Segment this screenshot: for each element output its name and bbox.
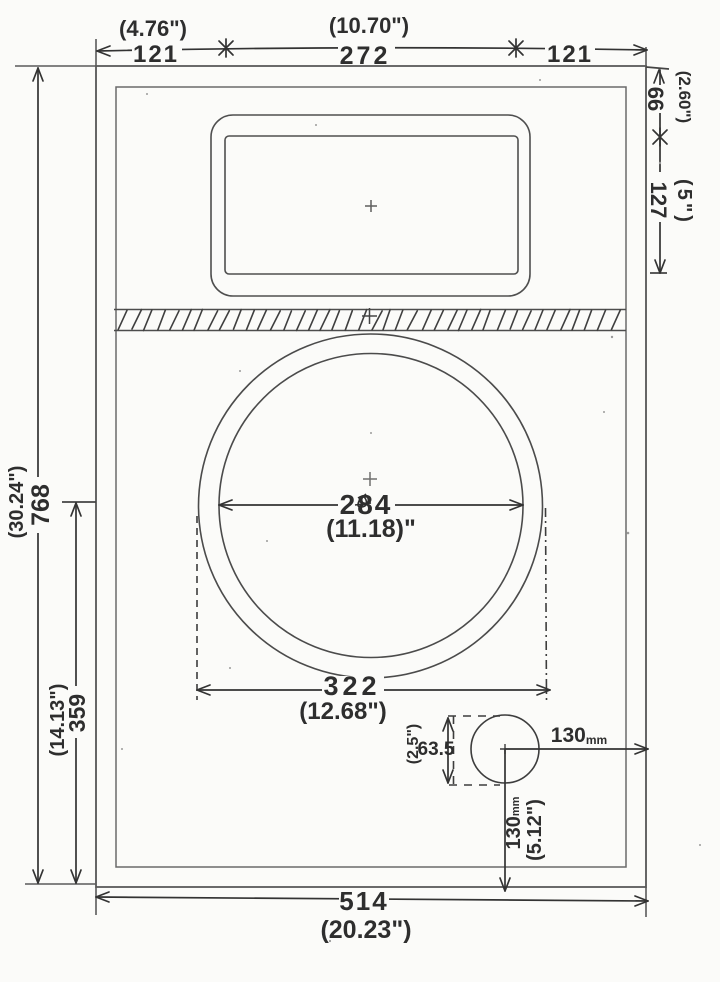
svg-text:322: 322 [323, 671, 380, 701]
svg-text:(2.60"): (2.60") [675, 71, 694, 123]
svg-text:272: 272 [340, 42, 391, 70]
svg-text:63.5: 63.5 [418, 739, 455, 760]
svg-text:768: 768 [27, 484, 55, 526]
svg-text:66: 66 [643, 87, 668, 111]
svg-text:(12.68"): (12.68") [299, 698, 386, 725]
svg-text:(10.70"): (10.70") [329, 13, 409, 38]
svg-text:(4.76"): (4.76") [119, 16, 187, 41]
svg-text:(14.13"): (14.13") [47, 684, 69, 757]
svg-text:(5"): (5") [673, 179, 695, 225]
svg-text:(5.12"): (5.12") [524, 799, 546, 861]
svg-text:(2.5"): (2.5") [405, 724, 422, 764]
svg-text:514: 514 [339, 886, 388, 916]
svg-text:(30.24"): (30.24") [6, 466, 28, 539]
svg-text:121: 121 [133, 41, 179, 68]
svg-text:(20.23"): (20.23") [320, 916, 411, 944]
svg-text:127: 127 [646, 182, 671, 219]
svg-text:121: 121 [547, 41, 593, 68]
svg-text:(11.18)": (11.18)" [326, 515, 416, 543]
